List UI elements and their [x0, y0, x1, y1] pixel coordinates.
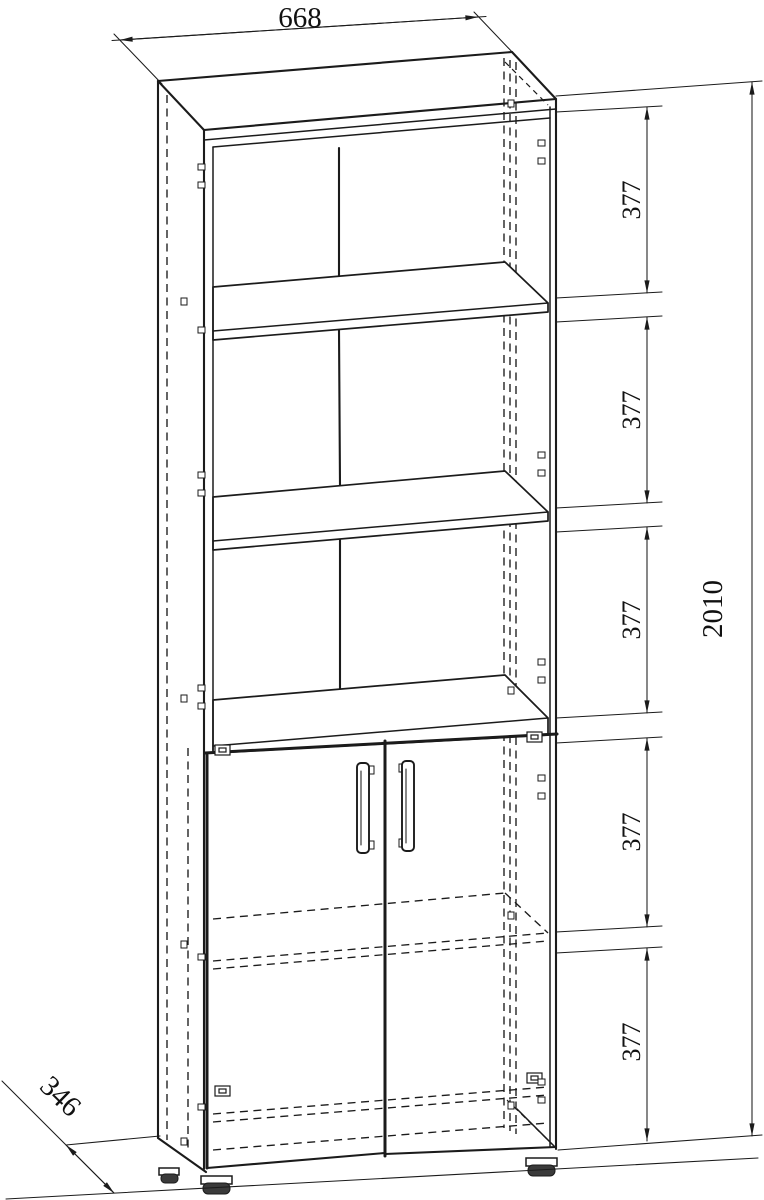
- hidden-pin-mark: [508, 1102, 514, 1109]
- right-door-bottom-hinge-detail: [531, 1076, 538, 1080]
- section-dim-3-label: 377: [617, 601, 646, 640]
- section-dim-1-label: 377: [617, 181, 646, 220]
- section-extension: [556, 502, 662, 508]
- shelf-pin: [538, 659, 545, 665]
- section-dim-5-label: 377: [617, 1023, 646, 1062]
- cabinet-technical-drawing: 668 377 377 377 377 377 2010 346: [0, 0, 764, 1200]
- dimension-width: 668: [112, 2, 515, 84]
- hidden-pin-mark: [508, 912, 514, 919]
- depth-extension-back: [66, 1136, 160, 1145]
- top-front-edge: [204, 99, 556, 130]
- width-extension-left: [114, 34, 162, 84]
- hidden-edges: [167, 58, 548, 1150]
- right-door-handle: [402, 761, 414, 851]
- dimension-sections: 377 377 377 377 377: [556, 106, 662, 1141]
- shelf-pin: [198, 472, 205, 478]
- shelf-2-slab: [213, 471, 548, 550]
- section-extension: [556, 106, 662, 112]
- section-extension: [556, 947, 662, 953]
- shelves: [213, 262, 548, 753]
- shelf-pin: [198, 685, 205, 691]
- hidden-shelf-front-bottom-edge: [213, 941, 548, 969]
- depth-dimension-arrows: [66, 1145, 114, 1193]
- back-left-foot: [161, 1174, 178, 1183]
- section-extension: [556, 526, 662, 532]
- back-seam-middle: [339, 330, 340, 486]
- left-door-top-hinge-detail: [219, 748, 226, 752]
- section-dim-2-label: 377: [617, 391, 646, 430]
- top-right-depth-edge: [512, 52, 556, 99]
- left-door-handle: [357, 763, 369, 853]
- hidden-bottom-panel-top-edge: [213, 1095, 548, 1122]
- feet: [6, 1158, 758, 1199]
- shelf-pin: [538, 793, 545, 799]
- shelf-pin: [198, 703, 205, 709]
- depth-dimension-label: 346: [33, 1070, 87, 1123]
- hidden-pin-mark: [181, 695, 187, 702]
- section-extension: [556, 292, 662, 298]
- section-extension: [556, 737, 662, 743]
- hidden-bottom-panel-back-edge: [213, 1087, 548, 1114]
- shelf-pins: [181, 100, 545, 1145]
- width-extension-right: [474, 12, 515, 55]
- section-extension: [556, 316, 662, 322]
- floor-line: [6, 1158, 758, 1199]
- hidden-shelf-back-edge: [213, 893, 505, 919]
- section-extension: [556, 926, 662, 932]
- shelf-pin: [538, 775, 545, 781]
- right-door-bottom-edge: [385, 1147, 556, 1154]
- shelf-pin: [538, 677, 545, 683]
- hidden-shelf-front-top-edge: [213, 933, 548, 961]
- dimension-height: 2010: [556, 81, 762, 1150]
- shelf-pin: [198, 164, 205, 170]
- right-door-top-hinge-detail: [531, 735, 538, 739]
- shelf-pin: [198, 327, 205, 333]
- height-dimension-label: 2010: [697, 580, 729, 638]
- back-panel-seam: [339, 148, 340, 690]
- height-extension-top: [556, 81, 762, 96]
- hidden-pin-mark: [181, 941, 187, 948]
- top-left-depth-edge: [158, 81, 204, 130]
- shelf-pin: [538, 470, 545, 476]
- shelf-pin: [198, 182, 205, 188]
- height-extension-bottom: [558, 1135, 762, 1150]
- hidden-pin-mark: [181, 298, 187, 305]
- drawing-page: 668 377 377 377 377 377 2010 346: [0, 0, 764, 1200]
- section-extension: [556, 712, 662, 718]
- hidden-pin-mark: [181, 1138, 187, 1145]
- shelf-pin: [538, 158, 545, 164]
- shelf-pin: [198, 490, 205, 496]
- shelf-pin: [538, 1079, 545, 1085]
- left-door-bottom-hinge-detail: [219, 1089, 226, 1093]
- hidden-pin-mark: [508, 100, 514, 107]
- width-dimension-label: 668: [278, 2, 322, 34]
- ceiling-interior-edge: [213, 118, 550, 147]
- hidden-pin-mark: [508, 687, 514, 694]
- shelf-1-slab: [213, 262, 548, 340]
- shelf-pin: [198, 1104, 205, 1110]
- shelf-pin: [538, 452, 545, 458]
- left-door-bottom-edge: [207, 1153, 385, 1168]
- hinges: [215, 732, 542, 1096]
- shelf-pin: [538, 1097, 545, 1103]
- top-back-edge: [158, 52, 512, 81]
- carcass: [158, 52, 556, 1172]
- section-dim-4-label: 377: [617, 813, 646, 852]
- hidden-bottom-panel-front-edge: [213, 1123, 548, 1150]
- shelf-pin: [538, 140, 545, 146]
- dimension-depth: 346: [2, 1070, 160, 1193]
- shelf-pin: [198, 954, 205, 960]
